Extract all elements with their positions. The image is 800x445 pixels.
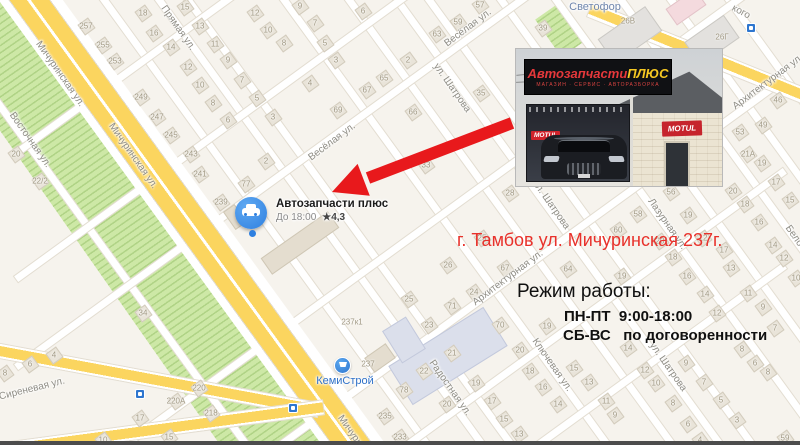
building-number: 6 (226, 116, 230, 125)
building-number: 6 (361, 7, 365, 16)
building-number: 19 (684, 211, 693, 220)
building-number: 237к1 (341, 318, 362, 327)
building-number: 247 (150, 113, 163, 122)
building-number: 16 (150, 29, 159, 38)
building-number: 5 (719, 396, 723, 405)
building-number: 12 (780, 254, 789, 263)
building-number: 7 (240, 76, 244, 85)
building-number: 7 (773, 324, 777, 333)
sign-text-main: Автозапчасти (528, 66, 628, 81)
car-icon (242, 208, 260, 216)
building-number: 8 (766, 368, 770, 377)
building-number: 255 (96, 41, 109, 50)
bus-stop-icon (746, 23, 756, 33)
building-number: 23 (425, 321, 434, 330)
building-number: 4 (308, 79, 312, 88)
building-number: 6 (686, 420, 690, 429)
building-number: 15 (570, 364, 579, 373)
building-number: 8 (740, 345, 744, 354)
window-edge (0, 441, 800, 445)
building-number: 26В (621, 17, 635, 26)
building-number: 5 (323, 39, 327, 48)
building-number: 26Г (715, 33, 728, 42)
building-number: 20 (516, 346, 525, 355)
building-number: 3 (271, 113, 275, 122)
building-number: 6 (753, 359, 757, 368)
storefront-photo: АвтозапчастиПЛЮС МАГАЗИН · СЕРВИС · АВТО… (515, 48, 723, 187)
building-number: 21А (741, 150, 755, 159)
street-label: кого (730, 3, 752, 22)
building-number: 17 (488, 397, 497, 406)
bus-stop-icon (288, 403, 298, 413)
map-pin-autoparts[interactable] (235, 197, 267, 229)
building-number: 20 (729, 187, 738, 196)
poi-kemistroy[interactable]: КемиСтрой (316, 375, 374, 387)
building-number: 22 (420, 367, 429, 376)
building-number: 16 (755, 218, 764, 227)
building-number: 11 (602, 397, 610, 406)
building-number: 241 (193, 170, 206, 179)
building-number: 18 (741, 200, 750, 209)
drain-pipe (630, 89, 633, 187)
street-label: Весёлая ул. (306, 121, 357, 163)
building-number: 7 (702, 378, 706, 387)
building-number: 8 (3, 369, 7, 378)
building-number: 13 (585, 378, 594, 387)
building-number: 14 (701, 290, 710, 299)
rating-star-icon: ★ (322, 212, 331, 223)
building-number: 5 (255, 94, 259, 103)
building-number: 2 (264, 157, 268, 166)
building-number: 8 (211, 99, 215, 108)
billboard: MOTUL (526, 104, 630, 182)
motul-wall-sign: MOTUL (662, 120, 702, 136)
building-number: 13 (515, 430, 524, 439)
building-number: 17 (136, 414, 145, 423)
building-number: 77 (242, 180, 251, 189)
building-number: 63 (433, 30, 442, 39)
building-number: 10 (264, 26, 273, 35)
building-number: 2 (406, 56, 410, 65)
building-number: 9 (761, 303, 765, 312)
building-number: 34 (139, 309, 148, 318)
building-number: 28 (506, 189, 515, 198)
building-number: 26 (444, 261, 453, 270)
building-number: 12 (251, 9, 260, 18)
building-number: 8 (671, 399, 675, 408)
building-number: 11 (211, 40, 219, 49)
building-number: 20 (12, 150, 21, 159)
building-number: 35 (477, 89, 486, 98)
building-number: 9 (684, 359, 688, 368)
building-number: 18 (669, 253, 678, 262)
building-number: 7 (313, 19, 317, 28)
building-number: 15 (500, 415, 509, 424)
building-number: 243 (184, 150, 197, 159)
building-number: 253 (108, 57, 121, 66)
car-photo (541, 135, 627, 179)
building-number: 21 (448, 349, 457, 358)
poi-svetofor[interactable]: Светофор (569, 1, 621, 13)
schedule-weekend: СБ-ВС по договоренности (563, 327, 767, 344)
building-number: 16 (683, 272, 692, 281)
building-number: 17 (772, 178, 781, 187)
map-pin-tail (249, 230, 256, 237)
building-number: 20 (443, 400, 452, 409)
building-number: 18 (526, 367, 535, 376)
building-number: 22/2 (32, 177, 48, 186)
building-number: 78 (400, 386, 409, 395)
building-number: 249 (134, 93, 147, 102)
pin-title[interactable]: Автозапчасти плюс (276, 198, 388, 210)
pin-subtitle: До 18:00★4,3 (276, 212, 345, 223)
building-number: 237 (361, 360, 374, 369)
building-number: 39 (539, 24, 548, 33)
building-number: 49 (759, 121, 768, 130)
building-door (664, 141, 690, 187)
pin-rating: 4,3 (331, 212, 345, 223)
schedule-weekdays: ПН-ПТ 9:00-18:00 (564, 308, 692, 325)
building-number: 11 (744, 289, 752, 298)
building-number: 70 (496, 321, 505, 330)
building-number: 12 (641, 366, 650, 375)
pin-hours: До 18:00 (276, 212, 316, 223)
building-number: 66 (409, 108, 418, 117)
building-number: 19 (472, 379, 481, 388)
street-label: Бело (783, 223, 800, 248)
building-number: 239 (214, 198, 227, 207)
building-number: 65 (380, 74, 389, 83)
building-number: 19 (758, 159, 767, 168)
building-number: 13 (727, 264, 736, 273)
building-number: 64 (564, 265, 573, 274)
building-number: 257 (79, 22, 92, 31)
store-sign: АвтозапчастиПЛЮС МАГАЗИН · СЕРВИС · АВТО… (524, 59, 672, 95)
building-number: 16 (539, 383, 548, 392)
sign-text-sub: МАГАЗИН · СЕРВИС · АВТОРАЗБОРКА (536, 82, 659, 88)
sign-text-accent: ПЛЮС (627, 66, 668, 81)
building-number: 8 (282, 39, 286, 48)
building-number: 6 (28, 360, 32, 369)
building-number: 15 (786, 196, 795, 205)
building-number: 14 (624, 344, 633, 353)
building-number: 53 (736, 128, 745, 137)
building-number: 9 (613, 411, 617, 420)
building-number: 19 (543, 322, 552, 331)
building-number: 33 (422, 161, 431, 170)
building-number: 14 (554, 400, 563, 409)
billboard-header (529, 107, 627, 112)
bus-stop-icon (135, 389, 145, 399)
building-number: 3 (735, 416, 739, 425)
building-number: 4 (52, 351, 56, 360)
street-label: Сиреневая ул. (0, 376, 66, 403)
building-number: 235 (378, 412, 391, 421)
building-number: 69 (334, 106, 343, 115)
schedule-title: Режим работы: (517, 281, 651, 303)
building-number: 10 (196, 81, 205, 90)
kemistroy-cart-icon[interactable] (334, 357, 351, 374)
building-number: 13 (196, 22, 205, 31)
building-number: 10 (652, 379, 661, 388)
building-number: 58 (634, 210, 643, 219)
map-screenshot: 2572552532492472452432412397721816141210… (0, 0, 800, 445)
building-number: 218 (204, 409, 217, 418)
building-number: 9 (298, 2, 302, 11)
building-number: 19 (618, 272, 627, 281)
building-number: 220 (192, 384, 205, 393)
building-number: 3 (334, 56, 338, 65)
building-number: 15 (181, 3, 190, 12)
building-number: 220А (167, 397, 186, 406)
building-number: 9 (226, 56, 230, 65)
building-number: 46 (774, 96, 783, 105)
building-number: 12 (184, 63, 193, 72)
building-number: 25 (405, 295, 414, 304)
building-number: 71 (448, 302, 457, 311)
building-number: 67 (363, 86, 372, 95)
address-text: г. Тамбов ул. Мичуринская 237г. (457, 230, 722, 251)
building-number: 56 (667, 188, 676, 197)
building-number: 18 (139, 9, 148, 18)
building-number: 245 (164, 131, 177, 140)
building-number: 14 (769, 241, 778, 250)
building-number: 10 (792, 274, 800, 283)
building-number: 14 (167, 43, 176, 52)
building-number: 12 (713, 309, 722, 318)
